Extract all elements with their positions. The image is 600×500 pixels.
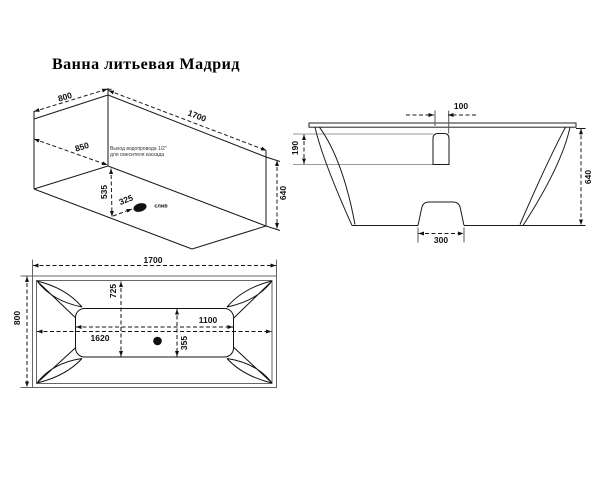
side-dim-cascade-depth: 190	[291, 141, 300, 155]
plan-dim-width: 800	[13, 311, 22, 325]
water-outlet-note-line2: для смесителя каскада	[110, 153, 164, 158]
iso-view	[34, 88, 280, 249]
page-title: Ванна литьевая Мадрид	[52, 56, 240, 74]
iso-dim-drain-depth: 535	[100, 185, 109, 199]
plan-dim-bowl-offset: 725	[109, 284, 118, 298]
side-dim-foot-width: 300	[434, 236, 448, 245]
plan-dim-length: 1700	[144, 256, 163, 265]
drain-icon	[153, 337, 162, 346]
plan-dim-bowl-width: 355	[180, 336, 189, 350]
cascade-outlet-box	[433, 134, 449, 165]
side-dim-cascade-width: 100	[454, 102, 468, 111]
side-view	[293, 111, 586, 243]
plan-dim-bowl-length: 1100	[199, 316, 217, 325]
drawing-page: Ванна литьевая Мадрид 800 1700 850 535 3…	[0, 0, 600, 500]
tub-rim	[309, 123, 576, 127]
side-dim-height: 640	[584, 170, 593, 184]
technical-drawing-canvas	[0, 0, 600, 500]
plan-view	[21, 260, 277, 388]
iso-dim-height: 640	[279, 186, 288, 200]
plan-dim-rim-length: 1620	[91, 334, 110, 343]
drain-label: слив	[154, 204, 167, 210]
drain-icon	[132, 202, 147, 214]
